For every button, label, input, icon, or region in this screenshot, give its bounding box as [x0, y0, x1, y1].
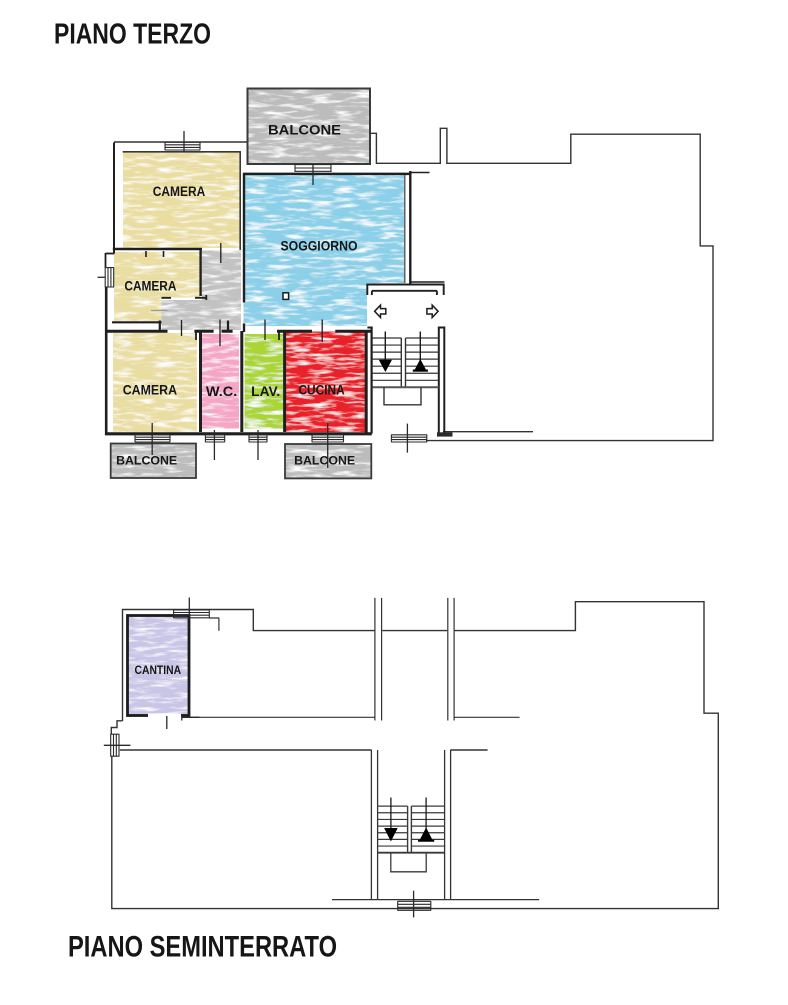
svg-text:CUCINA: CUCINA: [298, 383, 345, 398]
svg-text:LAV.: LAV.: [251, 384, 280, 399]
svg-text:CAMERA: CAMERA: [153, 184, 206, 199]
svg-text:CAMERA: CAMERA: [124, 279, 176, 294]
svg-text:PIANO SEMINTERRATO: PIANO SEMINTERRATO: [68, 931, 337, 964]
svg-text:CAMERA: CAMERA: [123, 383, 178, 398]
svg-text:BALCONE: BALCONE: [116, 454, 177, 468]
svg-text:SOGGIORNO: SOGGIORNO: [281, 238, 358, 253]
svg-text:PIANO TERZO: PIANO TERZO: [54, 19, 211, 51]
svg-text:W.C.: W.C.: [206, 384, 237, 399]
svg-text:CANTINA: CANTINA: [135, 665, 182, 677]
svg-text:BALCONE: BALCONE: [294, 454, 355, 468]
svg-text:BALCONE: BALCONE: [268, 122, 341, 138]
